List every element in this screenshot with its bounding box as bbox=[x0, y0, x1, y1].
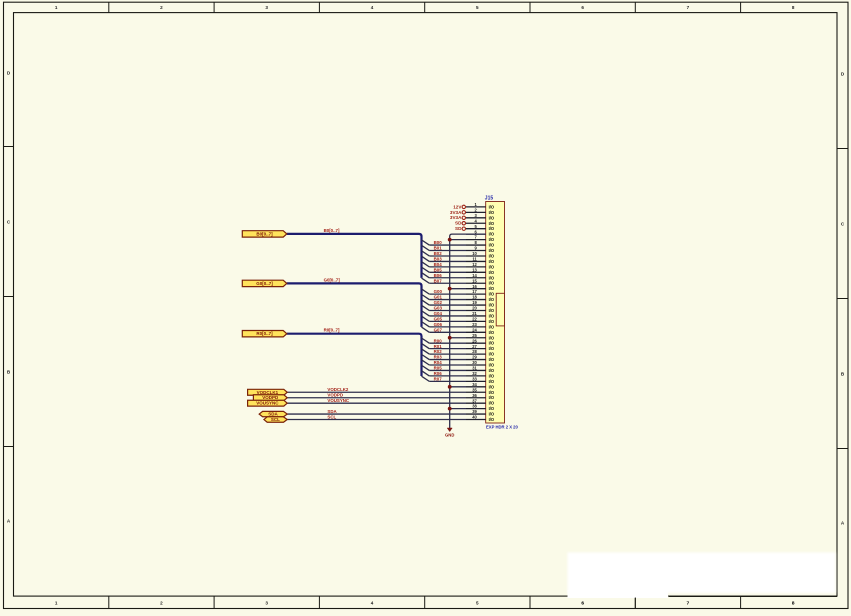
svg-text:VODCLK2: VODCLK2 bbox=[327, 387, 349, 392]
svg-text:3: 3 bbox=[265, 601, 268, 606]
svg-text:GND: GND bbox=[445, 432, 454, 437]
svg-text:I/O: I/O bbox=[489, 313, 495, 318]
svg-text:J15: J15 bbox=[485, 196, 494, 202]
svg-text:VODPD: VODPD bbox=[327, 393, 343, 398]
svg-text:17: 17 bbox=[472, 289, 477, 294]
svg-text:I/O: I/O bbox=[489, 357, 495, 362]
svg-text:B00: B00 bbox=[434, 240, 443, 245]
svg-text:I/O: I/O bbox=[489, 319, 495, 324]
svg-text:B06: B06 bbox=[434, 273, 443, 278]
svg-text:14: 14 bbox=[472, 273, 477, 278]
svg-text:I/O: I/O bbox=[489, 368, 495, 373]
svg-text:7: 7 bbox=[687, 601, 690, 606]
svg-text:16: 16 bbox=[472, 284, 477, 289]
svg-text:8: 8 bbox=[792, 601, 795, 606]
svg-text:2: 2 bbox=[160, 601, 163, 606]
svg-text:5: 5 bbox=[476, 5, 479, 10]
svg-text:R02: R02 bbox=[434, 349, 443, 354]
svg-text:35: 35 bbox=[472, 387, 477, 392]
svg-text:G0[0..7]: G0[0..7] bbox=[256, 281, 273, 286]
svg-text:SD: SD bbox=[455, 221, 462, 226]
svg-text:I/O: I/O bbox=[489, 259, 495, 264]
svg-text:G00: G00 bbox=[434, 289, 443, 294]
svg-text:G07: G07 bbox=[434, 327, 443, 332]
svg-text:7: 7 bbox=[687, 5, 690, 10]
svg-text:VOUSYNC: VOUSYNC bbox=[256, 401, 279, 406]
svg-text:21: 21 bbox=[472, 311, 477, 316]
svg-text:I/O: I/O bbox=[489, 395, 495, 400]
svg-text:R05: R05 bbox=[434, 366, 443, 371]
svg-text:6: 6 bbox=[581, 601, 584, 606]
svg-text:I/O: I/O bbox=[489, 330, 495, 335]
svg-text:I/O: I/O bbox=[489, 324, 495, 329]
svg-text:G04: G04 bbox=[434, 311, 443, 316]
svg-text:I/O: I/O bbox=[489, 210, 495, 215]
svg-text:3V3A: 3V3A bbox=[450, 215, 462, 220]
svg-text:B0[0..7]: B0[0..7] bbox=[256, 231, 273, 236]
svg-text:I/O: I/O bbox=[489, 346, 495, 351]
svg-text:5: 5 bbox=[476, 601, 479, 606]
svg-text:I/O: I/O bbox=[489, 237, 495, 242]
svg-text:40: 40 bbox=[472, 415, 477, 420]
svg-text:I/O: I/O bbox=[489, 215, 495, 220]
svg-text:31: 31 bbox=[472, 366, 477, 371]
svg-text:EXP HDR 2 X 20: EXP HDR 2 X 20 bbox=[486, 424, 518, 429]
svg-text:VOUSYNC: VOUSYNC bbox=[327, 398, 350, 403]
svg-text:1: 1 bbox=[55, 5, 58, 10]
svg-text:R03: R03 bbox=[434, 355, 443, 360]
svg-text:G02: G02 bbox=[434, 300, 443, 305]
svg-text:R01: R01 bbox=[434, 344, 443, 349]
svg-text:I/O: I/O bbox=[489, 401, 495, 406]
svg-text:18: 18 bbox=[472, 295, 477, 300]
svg-text:SD: SD bbox=[455, 226, 462, 231]
svg-text:I/O: I/O bbox=[489, 281, 495, 286]
svg-text:VODPD: VODPD bbox=[262, 395, 279, 400]
svg-text:I/O: I/O bbox=[489, 248, 495, 253]
svg-text:I/O: I/O bbox=[489, 384, 495, 389]
svg-text:26: 26 bbox=[472, 338, 477, 343]
svg-text:12V: 12V bbox=[453, 204, 462, 209]
svg-text:B02: B02 bbox=[434, 251, 443, 256]
svg-text:G0[0..7]: G0[0..7] bbox=[324, 277, 341, 282]
svg-text:36: 36 bbox=[472, 393, 477, 398]
svg-text:27: 27 bbox=[472, 344, 477, 349]
svg-text:I/O: I/O bbox=[489, 406, 495, 411]
svg-text:I/O: I/O bbox=[489, 264, 495, 269]
svg-text:B01: B01 bbox=[434, 246, 443, 251]
svg-text:I/O: I/O bbox=[489, 308, 495, 313]
svg-text:39: 39 bbox=[472, 409, 477, 414]
svg-text:B07: B07 bbox=[434, 278, 443, 283]
svg-text:I/O: I/O bbox=[489, 412, 495, 417]
svg-text:1: 1 bbox=[55, 601, 58, 606]
svg-text:I/O: I/O bbox=[489, 341, 495, 346]
svg-text:I/O: I/O bbox=[489, 335, 495, 340]
svg-text:SCL: SCL bbox=[271, 417, 280, 422]
svg-text:I/O: I/O bbox=[489, 292, 495, 297]
svg-text:R06: R06 bbox=[434, 371, 443, 376]
svg-text:3: 3 bbox=[265, 5, 268, 10]
svg-text:G01: G01 bbox=[434, 295, 443, 300]
svg-text:I/O: I/O bbox=[489, 390, 495, 395]
svg-text:I/O: I/O bbox=[489, 303, 495, 308]
svg-text:25: 25 bbox=[472, 333, 477, 338]
svg-text:4: 4 bbox=[371, 5, 374, 10]
svg-text:I/O: I/O bbox=[489, 373, 495, 378]
svg-text:B03: B03 bbox=[434, 257, 443, 262]
svg-text:I/O: I/O bbox=[489, 286, 495, 291]
svg-text:10: 10 bbox=[472, 251, 477, 256]
svg-text:I/O: I/O bbox=[489, 232, 495, 237]
svg-text:SCL: SCL bbox=[327, 414, 336, 419]
svg-text:29: 29 bbox=[472, 355, 477, 360]
svg-text:38: 38 bbox=[472, 404, 477, 409]
svg-text:I/O: I/O bbox=[489, 352, 495, 357]
svg-text:30: 30 bbox=[472, 360, 477, 365]
svg-text:R0[0..7]: R0[0..7] bbox=[324, 328, 340, 333]
svg-text:2: 2 bbox=[160, 5, 163, 10]
svg-text:G03: G03 bbox=[434, 306, 443, 311]
svg-text:I/O: I/O bbox=[489, 363, 495, 368]
svg-text:I/O: I/O bbox=[489, 417, 495, 422]
svg-text:I/O: I/O bbox=[489, 297, 495, 302]
svg-text:G06: G06 bbox=[434, 322, 443, 327]
svg-text:32: 32 bbox=[472, 371, 477, 376]
svg-text:37: 37 bbox=[472, 398, 477, 403]
svg-text:11: 11 bbox=[472, 257, 477, 262]
svg-text:SDA: SDA bbox=[268, 412, 278, 417]
svg-text:I/O: I/O bbox=[489, 226, 495, 231]
svg-text:8: 8 bbox=[792, 5, 795, 10]
svg-text:3V3A: 3V3A bbox=[450, 210, 462, 215]
svg-text:23: 23 bbox=[472, 322, 477, 327]
svg-text:G05: G05 bbox=[434, 316, 443, 321]
svg-text:I/O: I/O bbox=[489, 204, 495, 209]
svg-text:SDA: SDA bbox=[327, 409, 337, 414]
svg-text:B05: B05 bbox=[434, 267, 443, 272]
svg-text:15: 15 bbox=[472, 278, 477, 283]
svg-text:28: 28 bbox=[472, 349, 477, 354]
svg-text:I/O: I/O bbox=[489, 379, 495, 384]
svg-text:34: 34 bbox=[472, 382, 477, 387]
svg-text:I/O: I/O bbox=[489, 270, 495, 275]
svg-text:24: 24 bbox=[472, 327, 477, 332]
svg-text:13: 13 bbox=[472, 267, 477, 272]
svg-text:VODCLK1: VODCLK1 bbox=[257, 390, 279, 395]
svg-text:33: 33 bbox=[472, 376, 477, 381]
svg-text:I/O: I/O bbox=[489, 221, 495, 226]
svg-text:12: 12 bbox=[472, 262, 477, 267]
svg-text:20: 20 bbox=[472, 306, 477, 311]
svg-text:6: 6 bbox=[581, 5, 584, 10]
svg-text:I/O: I/O bbox=[489, 253, 495, 258]
svg-text:R04: R04 bbox=[434, 360, 443, 365]
svg-text:22: 22 bbox=[472, 316, 477, 321]
svg-text:R07: R07 bbox=[434, 376, 443, 381]
svg-text:B0[0..7]: B0[0..7] bbox=[324, 228, 340, 233]
svg-text:19: 19 bbox=[472, 300, 477, 305]
svg-text:I/O: I/O bbox=[489, 243, 495, 248]
svg-text:4: 4 bbox=[371, 601, 374, 606]
svg-text:I/O: I/O bbox=[489, 275, 495, 280]
svg-text:R0[0..7]: R0[0..7] bbox=[256, 331, 273, 336]
svg-text:B04: B04 bbox=[434, 262, 443, 267]
svg-text:R00: R00 bbox=[434, 338, 443, 343]
